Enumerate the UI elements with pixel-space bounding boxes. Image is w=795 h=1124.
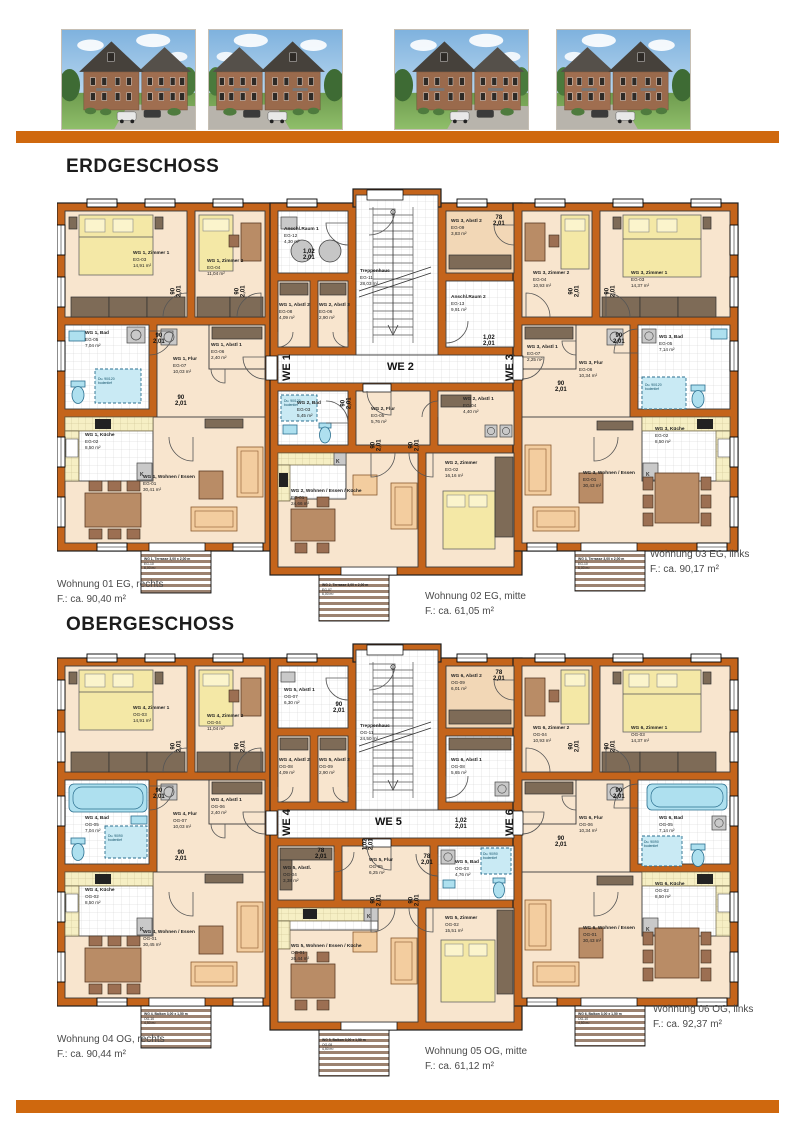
door-dimension: 902,01 <box>409 439 422 451</box>
door-dimension: 902,01 <box>235 740 248 752</box>
room-label: WG 4, KücheOG-028,50 m² <box>85 888 115 906</box>
door-dimension: 902,01 <box>409 894 422 906</box>
door-dimension: 902,01 <box>175 850 187 863</box>
room-label: WG 3, BadEG-057,14 m² <box>659 335 683 353</box>
room-label: TreppenhausOG-1124,50 m² <box>360 724 390 742</box>
room-label: WG 2, FlurEG-055,76 m² <box>371 407 395 425</box>
room-label: WG 1, Abstl 1EG-062,40 m² <box>211 343 242 361</box>
room-label: WG 4, Wohnen / EssenOG-0130,45 m² <box>143 930 195 948</box>
unit-label-we5: WE 5 <box>375 816 402 828</box>
room-label: WG 2, ZimmerEG-0216,16 m² <box>445 461 477 479</box>
room-label: WG 3, Zimmer 1EG-0314,37 m² <box>631 271 667 289</box>
door-dimension: 782,01 <box>493 670 505 683</box>
divider-bar-bottom <box>16 1100 779 1113</box>
room-label: WG 1, Zimmer 2EG-0411,04 m² <box>207 259 243 277</box>
room-label: WG 4, Abstl 2OG-084,09 m² <box>279 758 310 776</box>
door-dimension: 902,01 <box>569 740 582 752</box>
room-label: WG 6, BadOG-057,14 m² <box>659 816 683 834</box>
room-label: WG 3, Abstl 2EG-093,83 m² <box>451 219 482 237</box>
terrace-label: WG 3, Terrasse 3,00 x 2,00 mEG-106,00 m² <box>578 557 624 571</box>
door-dimension: 902,01 <box>371 439 384 451</box>
door-dimension: 902,01 <box>235 285 248 297</box>
room-label: WG 4, Zimmer 2OG-0411,04 m² <box>207 714 243 732</box>
building-photo-2 <box>208 29 343 130</box>
room-label: WG 6, Abstl 2OG-096,01 m² <box>451 674 482 692</box>
room-label: WG 2, Wohnen / Essen / KücheEG-0124,66 m… <box>291 489 362 507</box>
room-label: WG 6, KücheOG-028,50 m² <box>655 882 685 900</box>
room-label: WG 5, BadOG-034,76 m² <box>455 860 479 878</box>
terrace-label: WG 1, Terrasse 3,00 x 2,00 mEG-106,00 m² <box>144 557 190 571</box>
balcony-label: WG 4, Balkon 3,00 x 1,50 mOG-104,50 m² <box>144 1012 188 1026</box>
room-label: WG 5, ZimmerOG-0215,51 m² <box>445 916 477 934</box>
room-label: WG 5, Wohnen / Essen / KücheOG-0126,44 m… <box>291 944 362 962</box>
unit-label-we6: WE 6 <box>504 809 516 836</box>
unit-label-we4: WE 4 <box>281 809 293 836</box>
door-dimension: 902,01 <box>555 836 567 849</box>
building-photo-3 <box>394 29 529 130</box>
shower-note: Du. 90/90bodentief <box>108 834 123 842</box>
room-label: WG 4, Zimmer 1OG-0314,91 m² <box>133 706 169 724</box>
room-label: Anschl.Raum 2EG-139,91 m² <box>451 295 486 313</box>
room-label: WG 6, FlurOG-0610,34 m² <box>579 816 603 834</box>
building-photo-4 <box>556 29 691 130</box>
room-label: WG 6, Zimmer 1OG-0314,37 m² <box>631 726 667 744</box>
room-label: WG 3, KücheEG-028,50 m² <box>655 427 685 445</box>
door-dimension: 902,01 <box>153 333 165 346</box>
apartment-label: Wohnung 04 OG, rechtsF.: ca. 90,44 m² <box>57 1032 165 1062</box>
unit-label-we3: WE 3 <box>504 354 516 381</box>
door-dimension: 1,022,01 <box>455 818 467 831</box>
room-label: WG 2, Abstl 3EG-062,90 m² <box>319 303 350 321</box>
door-dimension: 782,01 <box>421 854 433 867</box>
terrace-label: WG 2, Terrasse 3,00 x 2,00 mEG-076,00 m² <box>322 583 368 597</box>
room-label: WG 1, Zimmer 1EG-0314,91 m² <box>133 251 169 269</box>
room-label: WG 5, Abstl.OG-043,38 m² <box>283 866 311 884</box>
room-label: Anschl.Raum 1EG-124,30 m² <box>284 227 319 245</box>
floor-title-erdgeschoss: ERDGESCHOSS <box>66 156 219 178</box>
door-dimension: 902,01 <box>613 333 625 346</box>
balcony-label: WG 5, Balkon 3,00 x 1,50 mOG-084,50 m² <box>322 1038 366 1052</box>
room-label: WG 3, Zimmer 2EG-0410,93 m² <box>533 271 569 289</box>
unit-label-we1: WE 1 <box>281 354 293 381</box>
door-dimension: 902,01 <box>333 702 345 715</box>
door-dimension: 782,01 <box>315 848 327 861</box>
door-dimension: 902,01 <box>555 381 567 394</box>
room-label: WG 1, BadEG-057,04 m² <box>85 331 109 349</box>
room-label: WG 1, KücheEG-028,50 m² <box>85 433 115 451</box>
shower-note: Du. 90/120bodentief <box>645 383 662 391</box>
unit-label-we2: WE 2 <box>387 361 414 373</box>
apartment-label: Wohnung 05 OG, mitteF.: ca. 61,12 m² <box>425 1044 527 1074</box>
shower-note: Du. 90/90bodentief <box>483 852 498 860</box>
floor-plan-obergeschoss: K <box>57 640 739 1100</box>
door-dimension: 1,022,01 <box>363 838 376 850</box>
room-label: WG 4, FlurOG-0710,03 m² <box>173 812 197 830</box>
room-label: WG 5, FlurOG-056,25 m² <box>369 858 393 876</box>
apartment-label: Wohnung 02 EG, mitteF.: ca. 61,05 m² <box>425 589 526 619</box>
room-label: WG 2, Abstl 1EG-044,40 m² <box>463 397 494 415</box>
room-label: WG 5, Abstl 1OG-076,30 m² <box>284 688 315 706</box>
room-label: WG 6, Zimmer 2OG-0410,93 m² <box>533 726 569 744</box>
door-dimension: 902,01 <box>569 285 582 297</box>
room-label: WG 5, Abstl 2OG-092,90 m² <box>319 758 350 776</box>
door-dimension: 902,01 <box>371 894 384 906</box>
divider-bar-top <box>16 131 779 143</box>
door-dimension: 1,022,01 <box>483 335 495 348</box>
room-label: TreppenhausEG-1128,03 m² <box>360 269 390 287</box>
room-label: WG 1, FlurEG-0710,03 m² <box>173 357 197 375</box>
floor-title-obergeschoss: OBERGESCHOSS <box>66 614 235 636</box>
room-label: WG 3, Wohnen / EssenEG-0130,43 m² <box>583 471 635 489</box>
door-dimension: 902,01 <box>613 788 625 801</box>
door-dimension: 902,01 <box>171 285 184 297</box>
door-dimension: 902,01 <box>605 285 618 297</box>
room-label: WG 4, BadOG-057,04 m² <box>85 816 109 834</box>
shower-note: Du. 90/120bodentief <box>98 377 115 385</box>
door-dimension: 902,01 <box>341 397 354 409</box>
room-label: WG 1, Abstl 2EG-084,09 m² <box>279 303 310 321</box>
apartment-label: Wohnung 06 OG, linksF.: ca. 92,37 m² <box>653 1002 753 1032</box>
door-dimension: 902,01 <box>175 395 187 408</box>
door-dimension: 782,01 <box>493 215 505 228</box>
shower-note: Du. 90/90bodentief <box>644 840 659 848</box>
room-label: WG 6, Wohnen / EssenOG-0130,43 m² <box>583 926 635 944</box>
room-label: WG 3, FlurEG-0610,34 m² <box>579 361 603 379</box>
door-dimension: 1,022,01 <box>303 249 315 262</box>
shower-note: Du. 90/120bodentief <box>284 399 301 407</box>
room-label: WG 4, Abstl 1OG-062,40 m² <box>211 798 242 816</box>
door-dimension: 902,01 <box>605 740 618 752</box>
room-label: WG 3, Abstl 1EG-072,25 m² <box>527 345 558 363</box>
floor-plan-sheet: K <box>0 0 795 1124</box>
fridge-label: K <box>336 459 340 465</box>
fridge-label: K <box>367 914 371 920</box>
door-dimension: 902,01 <box>153 788 165 801</box>
building-photo-1 <box>61 29 196 130</box>
balcony-label: WG 6, Balkon 3,00 x 1,50 mOG-104,50 m² <box>578 1012 622 1026</box>
floor-plan-erdgeschoss: K <box>57 185 739 645</box>
door-dimension: 902,01 <box>171 740 184 752</box>
room-label: WG 6, Abstl 1OG-085,65 m² <box>451 758 482 776</box>
apartment-label: Wohnung 01 EG, rechtsF.: ca. 90,40 m² <box>57 577 164 607</box>
apartment-label: Wohnung 03 EG, linksF.: ca. 90,17 m² <box>650 547 749 577</box>
room-label: WG 1, Wohnen / EssenEG-0130,41 m² <box>143 475 195 493</box>
room-label: WG 2, BadEG-035,45 m² <box>297 401 321 419</box>
